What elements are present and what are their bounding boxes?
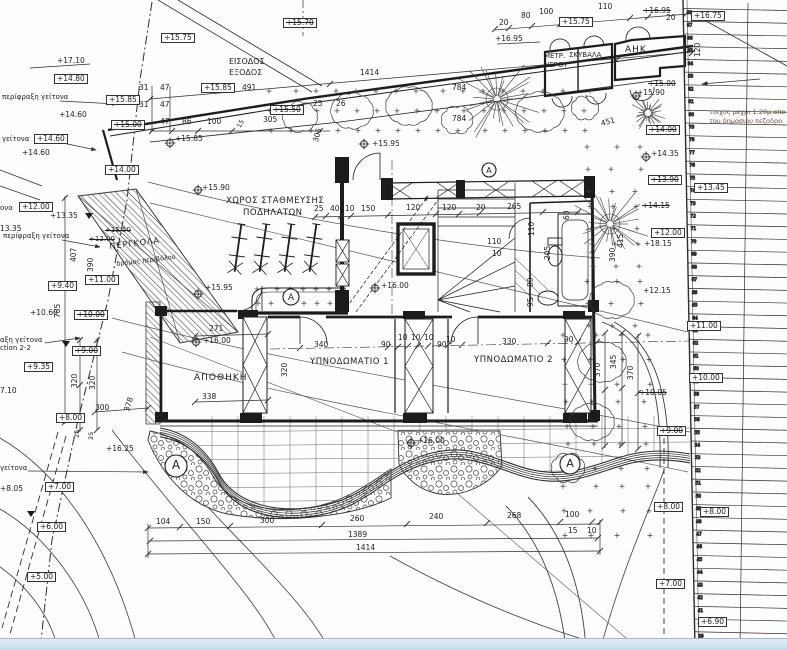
strip-number: 45 xyxy=(697,557,703,563)
zone-letter: A xyxy=(288,293,295,303)
strip-number: 50 xyxy=(696,493,702,499)
strip-number: 56 xyxy=(694,417,700,423)
strip-number: 61 xyxy=(693,353,699,359)
strip-number: 86 xyxy=(687,35,693,41)
strip-row xyxy=(691,454,787,456)
dim-tick xyxy=(545,340,551,346)
strip-row xyxy=(690,403,787,405)
strip-number: 59 xyxy=(693,379,699,385)
strip-row xyxy=(684,59,787,61)
strip-number: 76 xyxy=(689,163,695,169)
site-plan-drawing: 8887868584838281807978777675747372717069… xyxy=(0,0,787,650)
strip-row xyxy=(685,123,787,125)
strip-row xyxy=(689,327,787,329)
bicycle-icon xyxy=(251,223,274,275)
strip-number: 55 xyxy=(694,430,700,436)
zone-letter: A xyxy=(486,166,492,175)
strip-number: 82 xyxy=(688,86,694,92)
strip-number: 81 xyxy=(688,99,694,105)
strip-row xyxy=(685,98,787,100)
strip-row xyxy=(689,314,787,316)
strip-row xyxy=(695,632,787,634)
strip-row xyxy=(685,110,787,112)
strip-row xyxy=(691,428,787,430)
strip-row xyxy=(685,85,787,87)
strip-number: 58 xyxy=(694,392,700,398)
strip-number: 74 xyxy=(690,188,696,194)
strip-row xyxy=(686,174,787,176)
strip-number: 72 xyxy=(690,214,696,220)
dim-tick xyxy=(540,209,546,215)
strip-number: 71 xyxy=(691,226,697,232)
dim-tick xyxy=(627,15,633,21)
building xyxy=(155,153,600,426)
strip-number: 62 xyxy=(693,341,699,347)
strip-number: 46 xyxy=(697,544,703,550)
strip-row xyxy=(689,352,787,354)
dim-tick xyxy=(323,213,329,219)
strip-number: 60 xyxy=(693,366,699,372)
pier-columns xyxy=(243,317,591,413)
dim-tick xyxy=(506,25,512,31)
utility-structures xyxy=(545,27,685,107)
zone-letter: A xyxy=(566,457,574,470)
bicycle-icon xyxy=(226,223,249,275)
strip-row xyxy=(684,47,787,49)
level-triangle-icon xyxy=(62,341,70,347)
strip-number: 65 xyxy=(692,303,698,309)
strip-number: 64 xyxy=(692,315,698,321)
strip-row xyxy=(693,517,787,519)
entrance-road xyxy=(158,0,322,92)
bottom-ui-bar xyxy=(0,638,787,650)
elevator-shaft xyxy=(398,224,434,274)
dim-tick xyxy=(557,21,563,27)
dim-tick xyxy=(529,23,535,29)
strip-row xyxy=(686,148,787,150)
dim-tick xyxy=(459,342,465,348)
strip-row xyxy=(684,34,787,36)
toilet-icon xyxy=(548,238,562,266)
strip-number: 57 xyxy=(694,404,700,410)
strip-row xyxy=(693,568,787,570)
strip-row xyxy=(693,543,787,545)
strip-number: 42 xyxy=(697,595,703,601)
strip-row xyxy=(693,530,787,532)
strip-row xyxy=(690,377,787,379)
strip-row xyxy=(692,466,787,468)
dim-tick xyxy=(385,212,391,218)
strip-number: 44 xyxy=(697,570,703,576)
strip-row xyxy=(689,301,787,303)
bicycle-symbols xyxy=(226,223,324,275)
sink-icon xyxy=(538,291,558,305)
strip-row xyxy=(687,199,787,201)
strip-row xyxy=(688,263,787,265)
bathtub-icon xyxy=(558,214,592,306)
shrub-icon xyxy=(572,96,599,120)
strip-number: 70 xyxy=(691,239,697,245)
strip-row xyxy=(690,390,787,392)
strip-row xyxy=(692,492,787,494)
strip-row xyxy=(692,505,787,507)
tree-icon xyxy=(632,99,665,129)
bicycle-icon xyxy=(276,223,299,275)
strip-number: 78 xyxy=(689,137,695,143)
shrub-icon xyxy=(442,106,473,134)
strip-number: 54 xyxy=(695,442,701,448)
strip-number: 69 xyxy=(691,252,697,258)
strip-number: 80 xyxy=(689,112,695,118)
strip-number: 73 xyxy=(690,201,696,207)
strip-row xyxy=(687,212,787,214)
zone-letter: A xyxy=(172,458,181,472)
strip-row xyxy=(690,365,787,367)
shrub-icon xyxy=(386,87,432,126)
shrub-icon xyxy=(516,92,565,133)
strip-row xyxy=(683,21,787,23)
shrub-outlines xyxy=(282,87,634,483)
dim-tick xyxy=(297,345,303,351)
strip-row xyxy=(686,187,787,189)
strip-row xyxy=(688,250,787,252)
strip-row xyxy=(683,9,787,11)
strip-number: 77 xyxy=(689,150,695,156)
shrub-icon xyxy=(282,101,317,132)
strip-number: 43 xyxy=(697,582,703,588)
strip-number: 40 xyxy=(698,621,704,627)
strip-number: 83 xyxy=(688,74,694,80)
north-wall xyxy=(381,176,595,200)
tree-icon xyxy=(575,193,648,259)
strip-row xyxy=(694,581,787,583)
strip-number: 51 xyxy=(695,481,701,487)
strip-row xyxy=(686,136,787,138)
dim-tick xyxy=(177,524,183,530)
plan-canvas: 8887868584838281807978777675747372717069… xyxy=(0,0,787,650)
dim-tick xyxy=(395,344,401,350)
strip-number: 75 xyxy=(690,175,696,181)
strip-row xyxy=(688,276,787,278)
dim-tick xyxy=(404,521,410,527)
site-wall xyxy=(103,46,694,180)
strip-row xyxy=(686,161,787,163)
strip-number: 79 xyxy=(689,124,695,130)
strip-number: 47 xyxy=(696,532,702,538)
terrace xyxy=(148,416,690,520)
dim-tick xyxy=(319,522,325,528)
strip-number: 53 xyxy=(695,455,701,461)
dim-tick xyxy=(227,523,233,529)
strip-number: 84 xyxy=(688,61,694,67)
strip-number: 48 xyxy=(696,519,702,525)
strip-row xyxy=(687,225,787,227)
strip-row xyxy=(693,555,787,557)
dim-tick xyxy=(327,81,333,87)
stepped-sidewalk-strip: 8887868584838281807978777675747372717069… xyxy=(683,0,787,650)
dim-tick xyxy=(492,26,498,32)
strip-number: 52 xyxy=(695,468,701,474)
dim-tick xyxy=(477,210,483,216)
strip-number: 66 xyxy=(692,290,698,296)
strip-row xyxy=(691,416,787,418)
strip-number: 87 xyxy=(687,23,693,29)
strip-number: 41 xyxy=(698,608,704,614)
strip-row xyxy=(684,72,787,74)
level-triangle-icon xyxy=(27,511,35,517)
strip-number: 49 xyxy=(696,506,702,512)
strip-row xyxy=(688,288,787,290)
strip-number: 68 xyxy=(691,264,697,270)
strip-row xyxy=(691,441,787,443)
strip-row xyxy=(689,339,787,341)
strip-row xyxy=(687,237,787,239)
strip-number: 63 xyxy=(693,328,699,334)
strip-row xyxy=(692,479,787,481)
bicycle-icon xyxy=(301,223,324,275)
strip-number: 67 xyxy=(692,277,698,283)
